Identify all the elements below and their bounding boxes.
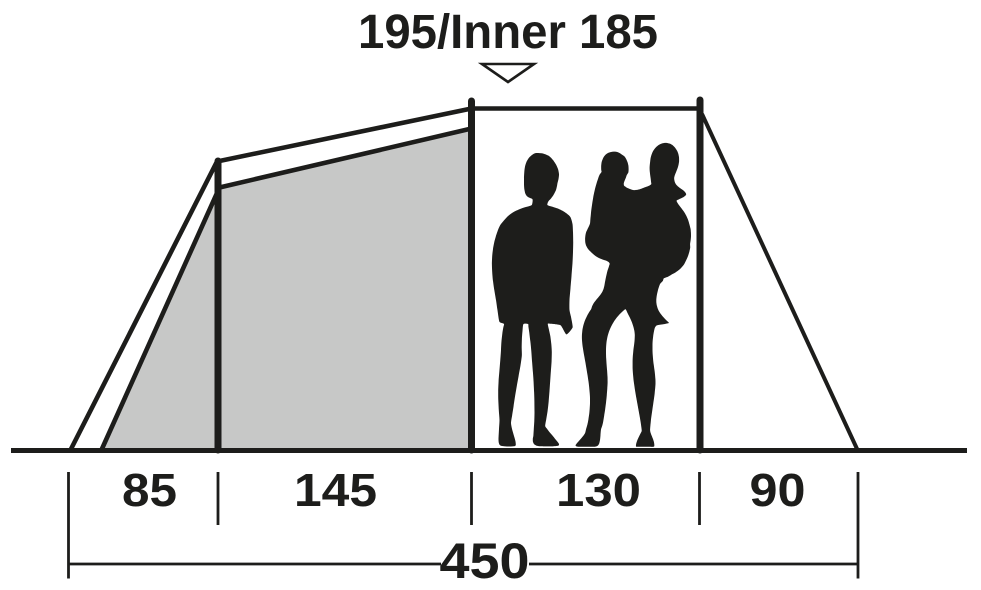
svg-text:450: 450 — [440, 533, 530, 589]
svg-text:85: 85 — [122, 464, 177, 516]
svg-text:145: 145 — [294, 464, 377, 516]
svg-text:195/Inner 185: 195/Inner 185 — [358, 6, 658, 59]
svg-text:130: 130 — [556, 464, 641, 516]
svg-text:90: 90 — [750, 464, 806, 516]
